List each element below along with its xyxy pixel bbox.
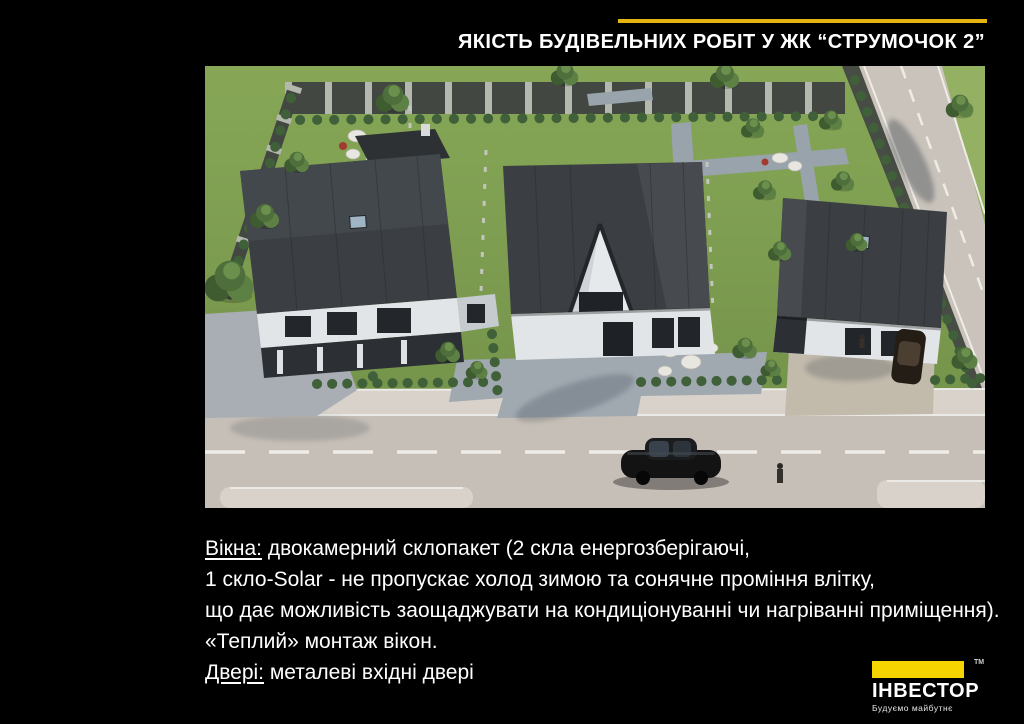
doors-label: Двері: — [205, 661, 264, 684]
doors-text: металеві вхідні двері — [264, 661, 474, 684]
slide: ЯКІСТЬ БУДІВЕЛЬНИХ РОБІТ У ЖК “СТРУМОЧОК… — [0, 0, 1024, 724]
logo-brand-name: ІНВЕСТОР — [872, 681, 992, 701]
render-scene — [205, 66, 985, 508]
accent-line — [618, 19, 987, 23]
logo-yellow-bar: ТМ — [872, 661, 964, 678]
house-center — [503, 162, 715, 360]
person-street — [777, 463, 783, 483]
windows-text: двокамерний склопакет (2 скла енергозбер… — [262, 537, 750, 560]
windows-label: Вікна: — [205, 537, 262, 560]
body-line-4: «Теплий» монтаж вікон. — [205, 626, 1005, 657]
person-yard — [860, 335, 865, 349]
logo-tagline: Будуємо майбутнє — [872, 703, 992, 713]
body-line-3: що дає можливість заощаджувати на кондиц… — [205, 595, 1005, 626]
body-line-1: Вікна: двокамерний склопакет (2 скла ене… — [205, 533, 1005, 564]
body-line-2: 1 скло-Solar - не пропускає холод зимою … — [205, 564, 1005, 595]
top-fence — [285, 82, 845, 114]
aerial-render-image — [205, 66, 985, 508]
investor-logo: ТМ ІНВЕСТОР Будуємо майбутнє — [872, 661, 992, 713]
slide-title: ЯКІСТЬ БУДІВЕЛЬНИХ РОБІТ У ЖК “СТРУМОЧОК… — [205, 31, 985, 54]
trademark-mark: ТМ — [974, 659, 984, 666]
